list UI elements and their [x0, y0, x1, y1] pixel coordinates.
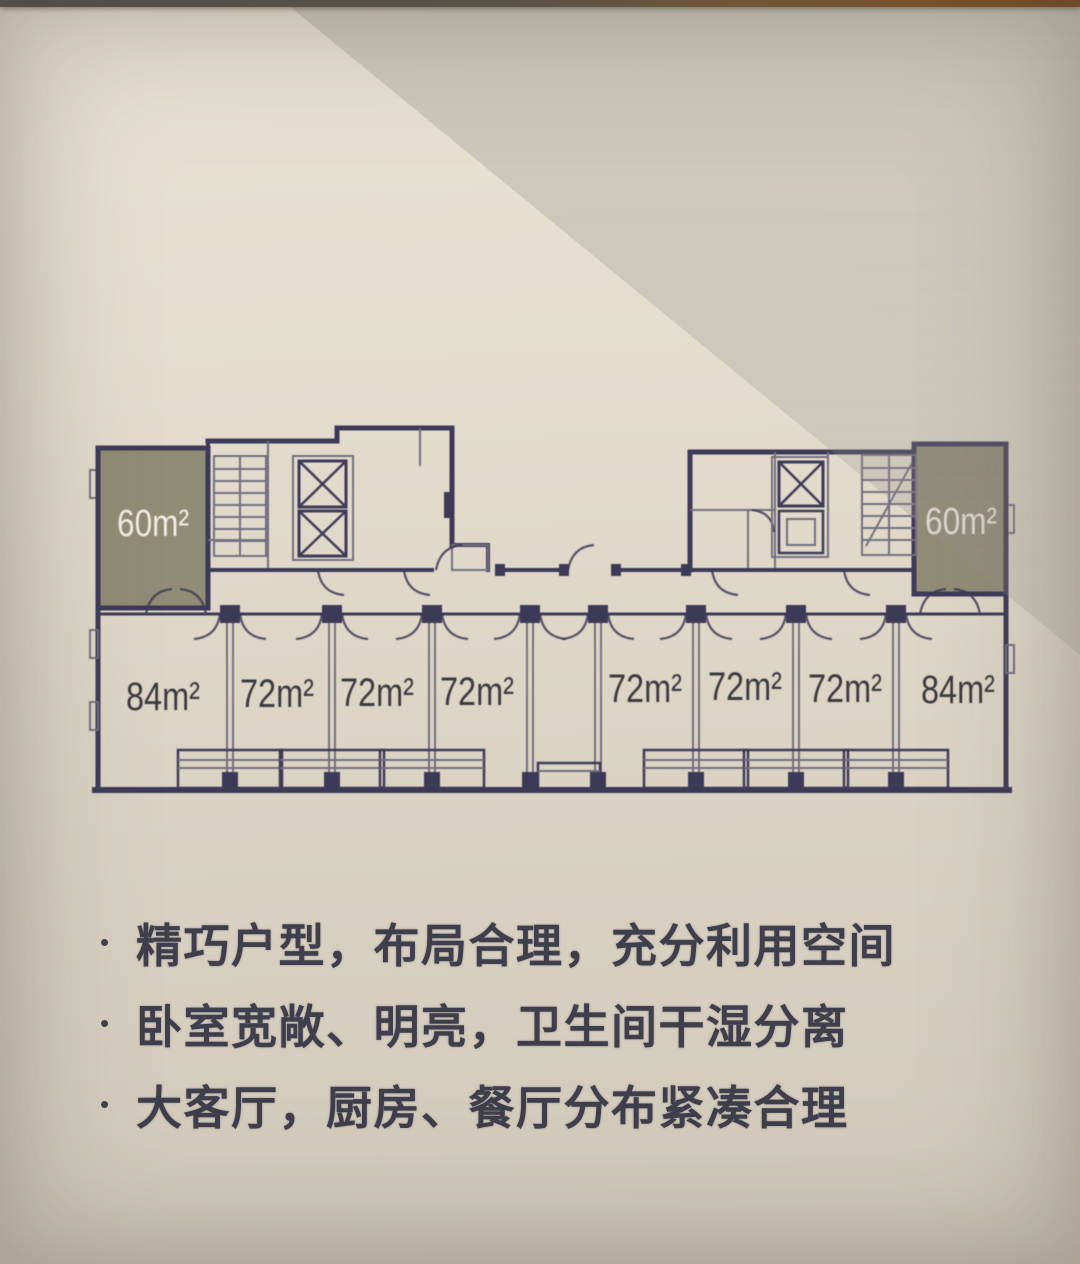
feature-item: • 大客厅，厨房、餐厅分布紧凑合理 — [92, 1064, 896, 1145]
feature-text: 卧室宽敞、明亮，卫生间干湿分离 — [136, 991, 849, 1057]
bullet-icon: • — [92, 1089, 136, 1120]
unit-60-right: 60m² — [914, 444, 1006, 594]
unit-label-1: 84m² — [126, 675, 200, 719]
feature-text: 大客厅，厨房、餐厅分布紧凑合理 — [136, 1072, 849, 1138]
photo-top-edge — [0, 0, 1080, 7]
door-arcs-units — [194, 614, 932, 639]
feature-text: 精巧户型，布局合理，充分利用空间 — [136, 910, 896, 976]
bay-windows — [178, 750, 948, 790]
unit-label-5: 72m² — [608, 667, 682, 711]
elevator-icon-right — [772, 457, 828, 557]
door-arcs-upper — [146, 545, 980, 614]
photo-background: 60m² 60m² — [0, 0, 1080, 1264]
elevator-icon-left — [293, 456, 353, 560]
stairs-icon-left — [214, 456, 266, 556]
core-right — [690, 452, 916, 570]
unit-label-3: 72m² — [340, 671, 414, 715]
unit-60-left: 60m² — [98, 448, 208, 608]
unit-60-right-label: 60m² — [925, 501, 997, 543]
unit-area-labels: 84m² 72m² 72m² 72m² 72m² 72m² 72m² 84m² — [126, 665, 995, 719]
unit-label-6: 72m² — [708, 665, 782, 709]
stairs-icon-right — [862, 455, 916, 555]
unit-label-4: 72m² — [440, 670, 514, 714]
bullet-icon: • — [92, 1008, 136, 1039]
unit-label-7: 72m² — [808, 667, 882, 711]
feature-item: • 卧室宽敞、明亮，卫生间干湿分离 — [92, 983, 896, 1064]
unit-60-left-label: 60m² — [117, 503, 189, 545]
unit-label-2: 72m² — [240, 672, 314, 716]
feature-item: • 精巧户型，布局合理，充分利用空间 — [92, 902, 896, 983]
core-left — [208, 428, 488, 570]
feature-list: • 精巧户型，布局合理，充分利用空间 • 卧室宽敞、明亮，卫生间干湿分离 • 大… — [92, 902, 896, 1145]
bullet-icon: • — [92, 927, 136, 958]
unit-label-8: 84m² — [921, 668, 995, 712]
